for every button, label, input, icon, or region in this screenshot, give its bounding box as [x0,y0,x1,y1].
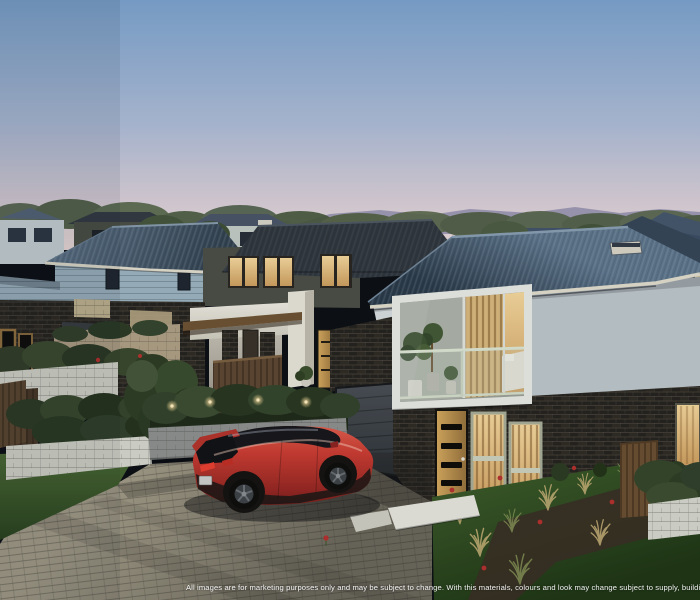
disclaimer-text: All images are for marketing purposes on… [186,583,700,592]
vignette [0,0,700,600]
exterior-render: All images are for marketing purposes on… [0,0,700,600]
exterior-render-svg [0,0,700,600]
